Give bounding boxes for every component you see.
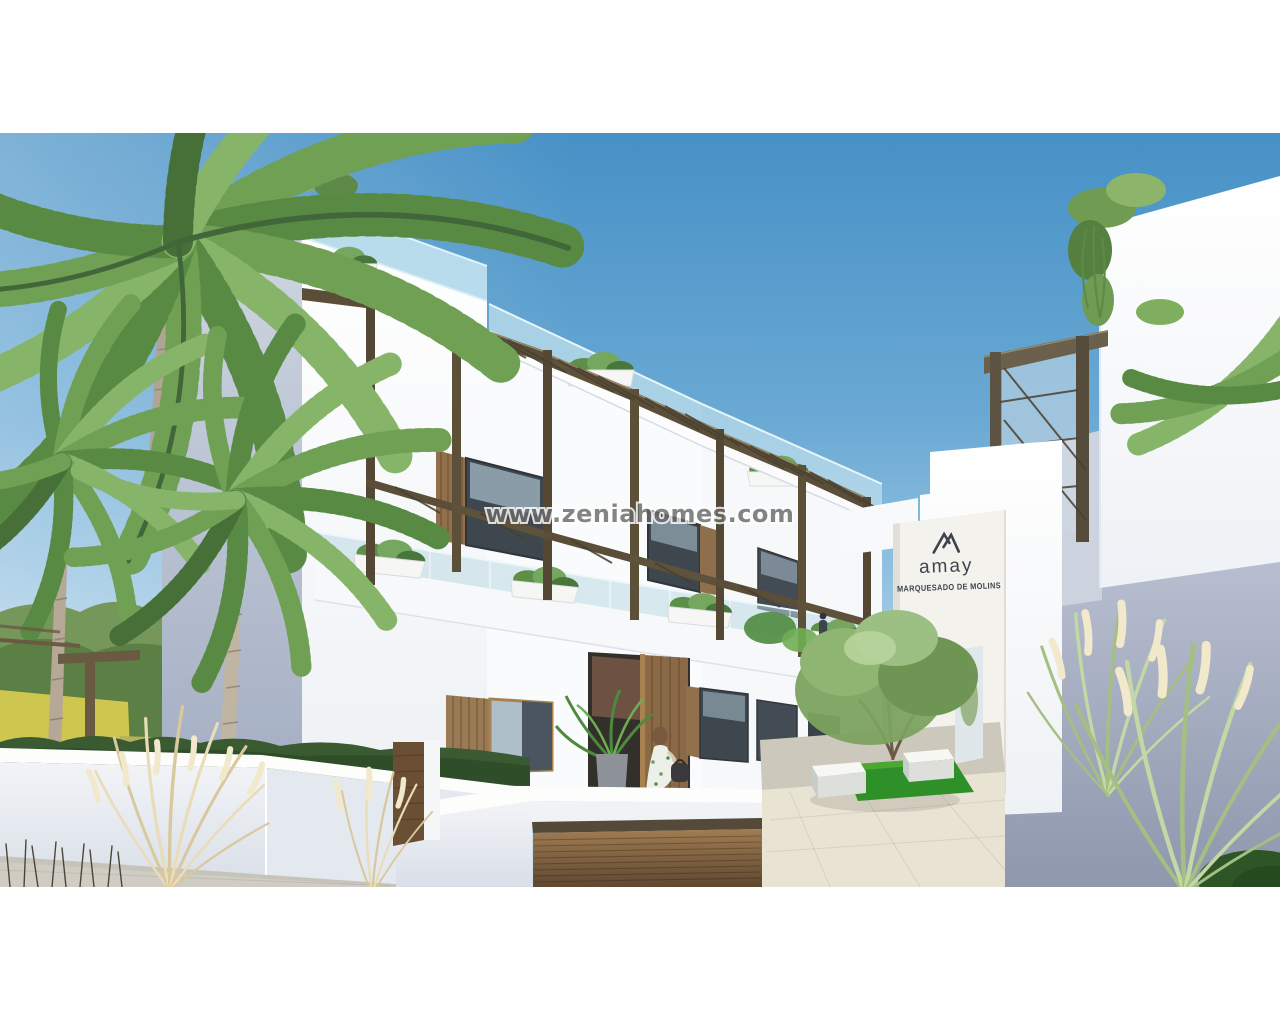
garage-door — [533, 829, 762, 887]
property-rendering-photo: amay MARQUESADO DE MOLINS — [0, 0, 1280, 1024]
bench-2 — [903, 749, 954, 782]
bench-1 — [812, 762, 866, 798]
wood-fence — [393, 742, 424, 846]
watermark-text: www.zeniahomes.com — [486, 500, 795, 528]
photo-page: amay MARQUESADO DE MOLINS — [0, 0, 1280, 1024]
amay-brand-text: amay — [919, 555, 974, 578]
